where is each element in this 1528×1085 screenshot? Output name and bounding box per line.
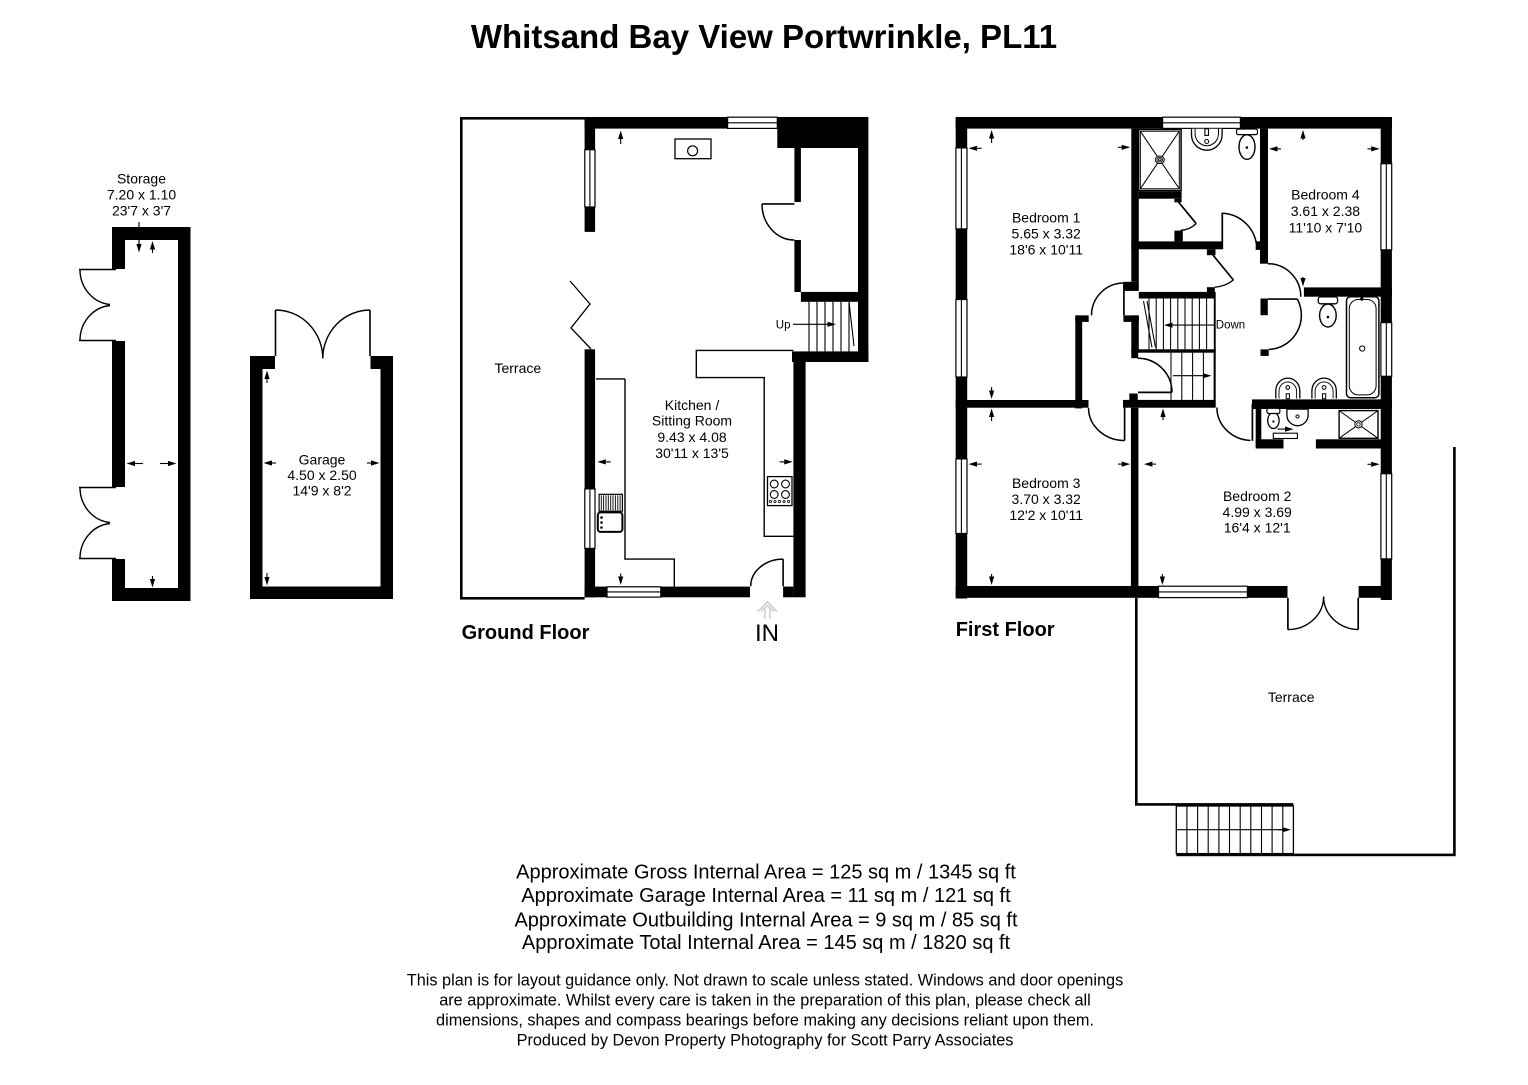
svg-text:11'10 x 7'10: 11'10 x 7'10 [1289,219,1363,235]
svg-text:14'9 x 8'2: 14'9 x 8'2 [292,483,351,499]
svg-text:16'4 x 12'1: 16'4 x 12'1 [1224,520,1291,536]
svg-text:Bedroom 3: Bedroom 3 [1012,475,1081,491]
svg-text:12'2 x 10'11: 12'2 x 10'11 [1009,507,1083,523]
svg-text:dimensions, shapes and compass: dimensions, shapes and compass bearings … [436,1012,1094,1030]
svg-text:Approximate Total Internal Are: Approximate Total Internal Area = 145 sq… [522,932,1011,954]
svg-text:Bedroom 1: Bedroom 1 [1012,210,1081,226]
svg-text:30'11 x 13'5: 30'11 x 13'5 [655,445,729,461]
svg-text:Down: Down [1216,320,1245,332]
svg-text:Bedroom 2: Bedroom 2 [1223,488,1292,504]
svg-text:Approximate Outbuilding Intern: Approximate Outbuilding Internal Area = … [514,909,1018,931]
svg-text:5.65 x 3.32: 5.65 x 3.32 [1012,225,1081,241]
svg-text:Terrace: Terrace [494,360,541,376]
svg-text:Terrace: Terrace [1268,689,1315,705]
svg-text:Approximate Garage Internal Ar: Approximate Garage Internal Area = 11 sq… [521,885,1011,907]
svg-text:Approximate Gross Internal Are: Approximate Gross Internal Area = 125 sq… [516,862,1016,884]
svg-text:Storage: Storage [117,171,166,187]
svg-text:4.99 x 3.69: 4.99 x 3.69 [1223,504,1292,520]
svg-text:Ground Floor: Ground Floor [462,622,590,644]
svg-text:Sitting Room: Sitting Room [652,413,732,429]
svg-text:are approximate. Whilst every: are approximate. Whilst every care is ta… [439,991,1091,1009]
svg-text:Produced by Devon Property Pho: Produced by Devon Property Photography f… [517,1032,1014,1050]
svg-text:4.50 x 2.50: 4.50 x 2.50 [287,467,356,483]
svg-text:3.70 x 3.32: 3.70 x 3.32 [1012,491,1081,507]
svg-text:IN: IN [755,620,779,647]
svg-text:23'7 x 3'7: 23'7 x 3'7 [112,203,171,219]
svg-text:7.20 x 1.10: 7.20 x 1.10 [107,187,176,203]
svg-text:18'6 x 10'11: 18'6 x 10'11 [1009,242,1083,258]
svg-text:Bedroom 4: Bedroom 4 [1291,186,1360,202]
svg-text:This plan is for layout guidan: This plan is for layout guidance only. N… [407,971,1123,989]
svg-text:First Floor: First Floor [956,619,1055,641]
svg-text:9.43 x 4.08: 9.43 x 4.08 [657,429,726,445]
svg-text:Up: Up [776,319,791,331]
svg-text:Kitchen /: Kitchen / [665,397,720,413]
svg-text:Whitsand Bay View Portwrinkle,: Whitsand Bay View Portwrinkle, PL11 [471,18,1057,55]
svg-text:Garage: Garage [299,451,346,467]
svg-text:3.61 x 2.38: 3.61 x 2.38 [1291,203,1360,219]
